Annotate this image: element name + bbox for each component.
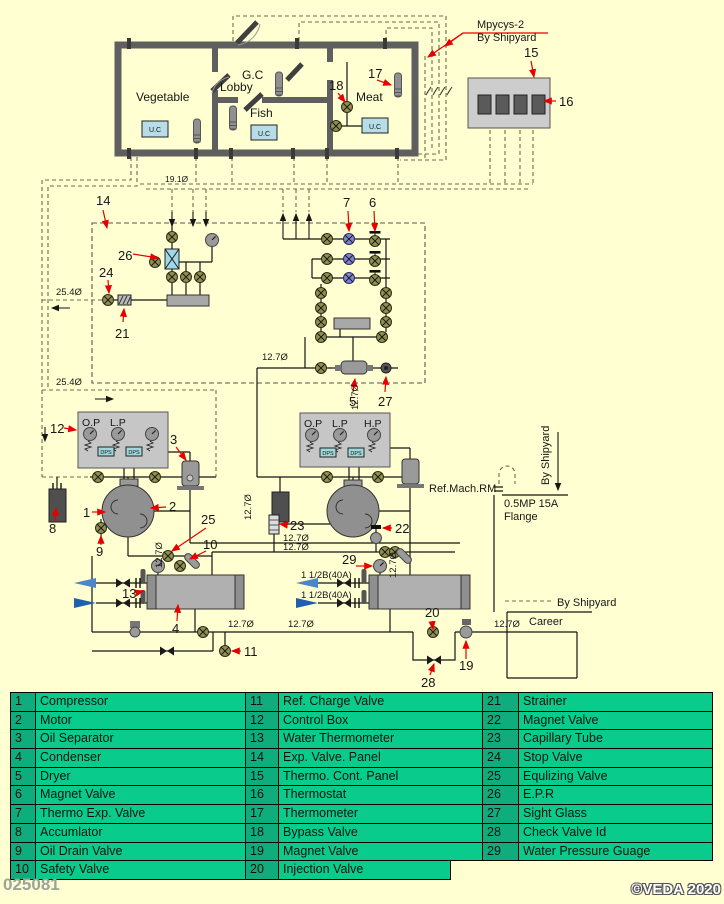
compressor-unit-1: O.P L.P DPS DPS bbox=[49, 412, 231, 657]
pipe-size-label: 19.1Ø bbox=[165, 174, 189, 184]
callout-9: 9 bbox=[96, 544, 103, 559]
legend-num: 13 bbox=[245, 729, 279, 749]
condenser-2: 1 1/2B(40A) 1 1/2B(40A) bbox=[296, 560, 470, 610]
stop-valve-icon bbox=[316, 303, 327, 314]
legend-row: 26E.P.R bbox=[482, 785, 713, 805]
legend-label: E.P.R bbox=[518, 785, 713, 805]
callout-2: 2 bbox=[169, 499, 176, 514]
legend-num: 28 bbox=[482, 823, 519, 843]
legend-row: 16Thermostat bbox=[245, 785, 483, 805]
thermostat-icon bbox=[532, 95, 545, 114]
pressure-switch-label: DPS bbox=[128, 450, 140, 456]
legend-num: 26 bbox=[482, 785, 519, 805]
legend-row: 29Water Pressure Guage bbox=[482, 842, 713, 862]
stop-valve-icon bbox=[181, 272, 192, 283]
legend-row: 14Exp. Valve. Panel bbox=[245, 748, 483, 768]
legend-num: 23 bbox=[482, 729, 519, 749]
mpycys-label: Mpycys-2 bbox=[477, 19, 524, 31]
stop-valve-icon bbox=[381, 288, 392, 299]
break-mark-icon bbox=[433, 87, 438, 95]
legend-row: 15Thermo. Cont. Panel bbox=[245, 767, 483, 787]
legend-label: Stop Valve bbox=[518, 748, 713, 768]
stop-valve-icon bbox=[316, 288, 327, 299]
legend-num: 22 bbox=[482, 711, 519, 731]
thermo-exp-valve-icon bbox=[344, 234, 355, 245]
legend-label: Ref. Charge Valve bbox=[278, 692, 483, 712]
legend-row: 18Bypass Valve bbox=[245, 823, 483, 843]
legend-num: 5 bbox=[10, 767, 36, 787]
legend-num: 11 bbox=[245, 692, 279, 712]
legend-label: Dryer bbox=[35, 767, 246, 787]
dryer-icon bbox=[341, 361, 367, 374]
magnet-valve-icon bbox=[370, 231, 381, 247]
water-pipe-size-label: 1 1/2B(40A) bbox=[301, 590, 352, 601]
callout-7: 7 bbox=[343, 195, 350, 210]
legend-num: 9 bbox=[10, 842, 36, 862]
callout-22: 22 bbox=[395, 521, 409, 536]
callout-10: 10 bbox=[203, 537, 217, 552]
legend-label: Thermo Exp. Valve bbox=[35, 804, 246, 824]
water-thermometer-icon bbox=[362, 590, 367, 604]
stop-valve-icon bbox=[322, 234, 333, 245]
legend-label: Magnet Valve bbox=[35, 785, 246, 805]
stop-valve-icon bbox=[377, 332, 388, 343]
thermometer-icon bbox=[395, 73, 402, 97]
thermo-control-panel bbox=[468, 78, 550, 128]
callout-1: 1 bbox=[83, 505, 90, 520]
stop-valve-icon bbox=[195, 272, 206, 283]
legend-label: Injection Valve bbox=[278, 860, 451, 880]
gauge-icon bbox=[206, 234, 219, 247]
stop-valve-icon bbox=[381, 303, 392, 314]
legend-num: 7 bbox=[10, 804, 36, 824]
water-outlet-arrow-icon bbox=[74, 578, 96, 588]
legend-label: Accumlator bbox=[35, 823, 246, 843]
legend-num: 19 bbox=[245, 842, 279, 862]
pipe-size-label: 12.7Ø bbox=[283, 542, 309, 553]
callout-19: 19 bbox=[459, 658, 473, 673]
legend-label: Thermo. Cont. Panel bbox=[278, 767, 483, 787]
water-thermometer-icon bbox=[141, 569, 146, 583]
legend-column-2: 11Ref. Charge Valve 12Control Box 13Wate… bbox=[245, 693, 483, 880]
break-mark-icon bbox=[440, 87, 445, 95]
legend-label: Equlizing Valve bbox=[518, 767, 713, 787]
pipe-size-label: 12.7Ø bbox=[262, 352, 288, 363]
by-shipyard-top-label: By Shipyard bbox=[477, 32, 536, 44]
magnet-valve-icon bbox=[370, 270, 381, 286]
check-valve-icon bbox=[427, 656, 441, 665]
gauge-icon bbox=[334, 429, 347, 442]
callout-3: 3 bbox=[170, 432, 177, 447]
pipe-size-label: 12.7Ø bbox=[494, 619, 520, 630]
refrigeration-schematic-page: Vegetable Lobby G.C Fish Meat U.C U.C U.… bbox=[0, 0, 724, 904]
thermometer-icon bbox=[276, 72, 283, 96]
legend-num: 1 bbox=[10, 692, 36, 712]
career-label: Career bbox=[529, 616, 563, 628]
pipe-size-label: 25.4Ø bbox=[56, 287, 82, 298]
unit-coolers: U.C U.C U.C bbox=[142, 118, 388, 140]
legend-row: 5Dryer bbox=[10, 767, 246, 787]
legend-label: Capillary Tube bbox=[518, 729, 713, 749]
unit-cooler-label: U.C bbox=[369, 124, 381, 131]
callout-20: 20 bbox=[425, 605, 439, 620]
legend-num: 4 bbox=[10, 748, 36, 768]
legend-row: 7Thermo Exp. Valve bbox=[10, 804, 246, 824]
legend-label: Thermostat bbox=[278, 785, 483, 805]
water-pressure-gauge-icon bbox=[374, 560, 387, 573]
stop-valve-icon bbox=[373, 472, 384, 483]
stop-valve-icon bbox=[175, 561, 186, 572]
legend-num: 25 bbox=[482, 767, 519, 787]
callout-6: 6 bbox=[369, 195, 376, 210]
document-number: 025081 bbox=[3, 875, 60, 895]
callout-18: 18 bbox=[329, 78, 343, 93]
room-label-fish: Fish bbox=[250, 106, 273, 120]
legend-label: Magnet Valve bbox=[278, 842, 483, 862]
gauge-icon bbox=[112, 428, 125, 441]
oil-separator bbox=[182, 461, 199, 486]
legend-label: Condenser bbox=[35, 748, 246, 768]
legend-num: 8 bbox=[10, 823, 36, 843]
legend-label: Safety Valve bbox=[35, 860, 246, 880]
stop-valve-icon bbox=[316, 332, 327, 343]
legend-num: 15 bbox=[245, 767, 279, 787]
stop-valve-icon bbox=[150, 472, 161, 483]
legend-num: 16 bbox=[245, 785, 279, 805]
legend-row: 19Magnet Valve bbox=[245, 842, 483, 862]
legend-row: 11Ref. Charge Valve bbox=[245, 692, 483, 712]
compressor-motor bbox=[102, 485, 154, 537]
pressure-switch-label: DPS bbox=[100, 450, 112, 456]
cold-rooms: Vegetable Lobby G.C Fish Meat U.C U.C U.… bbox=[118, 22, 415, 159]
callout-15: 15 bbox=[524, 45, 538, 60]
oil-separator bbox=[402, 459, 419, 484]
legend-row: 27Sight Glass bbox=[482, 804, 713, 824]
gauge-icon bbox=[84, 428, 97, 441]
manifold bbox=[334, 318, 370, 329]
magnet-valve-icon bbox=[460, 626, 472, 638]
flange-spec-label: 0.5MP 15A bbox=[504, 498, 559, 510]
legend-label: Magnet Valve bbox=[518, 711, 713, 731]
legend-row: 12Control Box bbox=[245, 711, 483, 731]
legend-row: 24Stop Valve bbox=[482, 748, 713, 768]
water-pipe-size-label: 1 1/2B(40A) bbox=[301, 570, 352, 581]
door-leaf-icon bbox=[212, 22, 302, 110]
callout-17: 17 bbox=[368, 66, 382, 81]
bypass-valve-icon bbox=[331, 121, 342, 132]
room-label-meat: Meat bbox=[356, 90, 383, 104]
stop-valve-icon bbox=[322, 254, 333, 265]
legend-row: 4Condenser bbox=[10, 748, 246, 768]
legend-num: 29 bbox=[482, 842, 519, 862]
valve-icon bbox=[160, 647, 174, 656]
stop-valve-icon bbox=[150, 257, 161, 268]
flange-label: Flange bbox=[504, 511, 538, 523]
room-label-vegetable: Vegetable bbox=[136, 90, 190, 104]
thermostat-icon bbox=[496, 95, 509, 114]
legend-num: 17 bbox=[245, 804, 279, 824]
gauge-icon bbox=[368, 429, 381, 442]
legend-label: Compressor bbox=[35, 692, 246, 712]
room-label-gc: G.C bbox=[242, 68, 264, 82]
callout-26: 26 bbox=[118, 248, 132, 263]
pipe-size-label: 12.7Ø bbox=[388, 552, 399, 578]
water-thermometer-icon bbox=[362, 569, 367, 583]
pipe-size-label: 12.7Ø bbox=[154, 542, 165, 568]
callout-16: 16 bbox=[559, 94, 573, 109]
gauge-icon bbox=[306, 429, 319, 442]
pressure-switch-label: DPS bbox=[350, 451, 362, 457]
magnet-valve-icon bbox=[370, 251, 381, 267]
legend-row: 8Accumlator bbox=[10, 823, 246, 843]
legend-label: Sight Glass bbox=[518, 804, 713, 824]
stop-valve-icon bbox=[322, 273, 333, 284]
legend-num: 20 bbox=[245, 860, 279, 880]
callout-27: 27 bbox=[378, 394, 392, 409]
exp-valve-panel-boundary bbox=[92, 223, 425, 383]
pipe-size-label: 12.7Ø bbox=[243, 494, 254, 520]
legend-num: 12 bbox=[245, 711, 279, 731]
callout-8: 8 bbox=[49, 521, 56, 536]
by-shipyard-right-label: By Shipyard bbox=[540, 426, 552, 485]
legend-row: 1Compressor bbox=[10, 692, 246, 712]
stop-valve-icon bbox=[103, 295, 114, 306]
stop-valve-icon bbox=[167, 272, 178, 283]
bypass-valve-icon bbox=[342, 102, 353, 113]
thermo-exp-valve-icon bbox=[344, 273, 355, 284]
room-label-lobby: Lobby bbox=[220, 80, 253, 94]
exp-valve-panel bbox=[103, 231, 392, 374]
ref-charge-valve-icon bbox=[220, 646, 231, 657]
legend-label: Water Thermometer bbox=[278, 729, 483, 749]
unit-cooler-label: U.C bbox=[258, 131, 270, 138]
legend-label: Bypass Valve bbox=[278, 823, 483, 843]
thermometer-icon bbox=[230, 106, 237, 130]
legend-num: 2 bbox=[10, 711, 36, 731]
unit-cooler-label: U.C bbox=[149, 127, 161, 134]
legend-row: 28Check Valve Id bbox=[482, 823, 713, 843]
refrigeration-diagram: Vegetable Lobby G.C Fish Meat U.C U.C U.… bbox=[0, 0, 724, 694]
break-mark-icon bbox=[447, 87, 452, 95]
stop-valve-icon bbox=[316, 363, 327, 374]
stop-valve-icon bbox=[93, 472, 104, 483]
break-mark-icon bbox=[426, 87, 431, 95]
pipe-size-label: 25.4Ø bbox=[56, 377, 82, 388]
accumulator bbox=[49, 489, 66, 522]
legend-row: 23Capillary Tube bbox=[482, 729, 713, 749]
compressor-motor bbox=[327, 485, 379, 537]
legend-label: Strainer bbox=[518, 692, 713, 712]
thermostat-icon bbox=[478, 95, 491, 114]
stop-valve-icon bbox=[322, 472, 333, 483]
callout-11: 11 bbox=[244, 644, 258, 659]
legend-column-3: 21Strainer 22Magnet Valve 23Capillary Tu… bbox=[482, 693, 713, 861]
stop-valve-icon bbox=[198, 627, 209, 638]
legend-label: Water Pressure Guage bbox=[518, 842, 713, 862]
pressure-switch-label: DPS bbox=[322, 451, 334, 457]
callout-24: 24 bbox=[99, 265, 113, 280]
callout-12: 12 bbox=[50, 421, 64, 436]
legend-label: Oil Separator bbox=[35, 729, 246, 749]
thermostat-icon bbox=[514, 95, 527, 114]
legend-label: Thermometer bbox=[278, 804, 483, 824]
legend-label: Motor bbox=[35, 711, 246, 731]
callout-29: 29 bbox=[342, 552, 356, 567]
callout-13: 13 bbox=[122, 586, 136, 601]
magnet-valve-icon bbox=[371, 533, 382, 544]
by-shipyard-bottom-label: By Shipyard bbox=[557, 597, 616, 609]
legend-row: 20Injection Valve bbox=[245, 860, 483, 880]
legend-label: Control Box bbox=[278, 711, 483, 731]
legend-row: 2Motor bbox=[10, 711, 246, 731]
thermometer-icon bbox=[194, 119, 201, 143]
callout-4: 4 bbox=[172, 621, 179, 636]
legend-num: 14 bbox=[245, 748, 279, 768]
callout-21: 21 bbox=[115, 326, 129, 341]
legend-row: 3Oil Separator bbox=[10, 729, 246, 749]
pipe-size-label: 12.7Ø bbox=[350, 384, 361, 410]
gauge-icon bbox=[146, 428, 159, 441]
legend-row: 22Magnet Valve bbox=[482, 711, 713, 731]
callout-23: 23 bbox=[290, 518, 304, 533]
legend-num: 6 bbox=[10, 785, 36, 805]
stop-valve-icon bbox=[167, 232, 178, 243]
legend-num: 21 bbox=[482, 692, 519, 712]
legend-num: 24 bbox=[482, 748, 519, 768]
legend-label: Exp. Valve. Panel bbox=[278, 748, 483, 768]
legend-column-1: 1Compressor 2Motor 3Oil Separator 4Conde… bbox=[10, 693, 246, 880]
water-inlet-arrow-icon bbox=[74, 598, 96, 608]
ref-mach-rm-label: Ref.Mach.RM bbox=[429, 483, 496, 495]
legend-num: 18 bbox=[245, 823, 279, 843]
legend-row: 21Strainer bbox=[482, 692, 713, 712]
oil-drain-valve-icon bbox=[96, 523, 107, 534]
legend-row: 17Thermometer bbox=[245, 804, 483, 824]
callout-14: 14 bbox=[96, 193, 110, 208]
pipe-size-label: 12.7Ø bbox=[228, 619, 254, 630]
legend-row: 9Oil Drain Valve bbox=[10, 842, 246, 862]
legend-num: 3 bbox=[10, 729, 36, 749]
legend-label: Oil Drain Valve bbox=[35, 842, 246, 862]
legend-num: 27 bbox=[482, 804, 519, 824]
pipe-size-label: 12.7Ø bbox=[288, 619, 314, 630]
legend-row: 13Water Thermometer bbox=[245, 729, 483, 749]
manifold bbox=[167, 295, 209, 306]
thermo-exp-valve-icon bbox=[344, 254, 355, 265]
copyright-watermark: ©VEDA 2020 bbox=[631, 881, 721, 898]
legend-row: 6Magnet Valve bbox=[10, 785, 246, 805]
stop-valve-icon bbox=[316, 317, 327, 328]
legend-label: Check Valve Id bbox=[518, 823, 713, 843]
stop-valve-icon bbox=[381, 317, 392, 328]
callout-28: 28 bbox=[421, 675, 435, 690]
legend-row: 25Equlizing Valve bbox=[482, 767, 713, 787]
callout-25: 25 bbox=[201, 512, 215, 527]
